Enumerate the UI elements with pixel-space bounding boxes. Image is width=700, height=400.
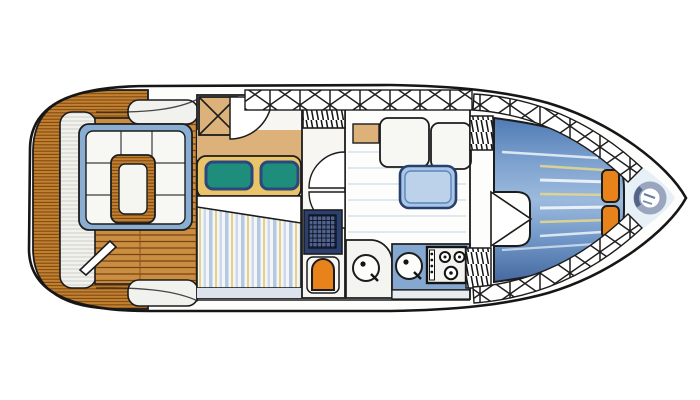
cockpit-table [111, 155, 155, 223]
pillow-right [261, 162, 298, 189]
settee-cushion-left [380, 118, 429, 167]
bow-cushion-top [602, 170, 619, 202]
side-steps-top [470, 116, 493, 150]
cabin-walkway [197, 288, 302, 298]
coachroof-rail-top [245, 90, 472, 110]
toilet-icon [312, 259, 334, 290]
salon-locker [353, 124, 379, 143]
cockpit-corner-bench-bottom [128, 280, 198, 306]
settee-cushion-right [431, 123, 471, 169]
windlass-icon [636, 185, 663, 211]
yacht-floorplan-illustration [0, 0, 700, 400]
stove-icon [427, 247, 466, 283]
cockpit [79, 100, 198, 306]
sink-left-icon [353, 255, 379, 281]
sink-right-icon [396, 253, 422, 279]
galley [346, 240, 470, 299]
aft-cabin-bed [197, 156, 302, 298]
shower-grate-icon [309, 215, 336, 248]
canvas [0, 0, 700, 400]
galley-plinth [392, 290, 470, 299]
side-steps-bottom [466, 248, 491, 288]
pillow-left [206, 162, 252, 189]
